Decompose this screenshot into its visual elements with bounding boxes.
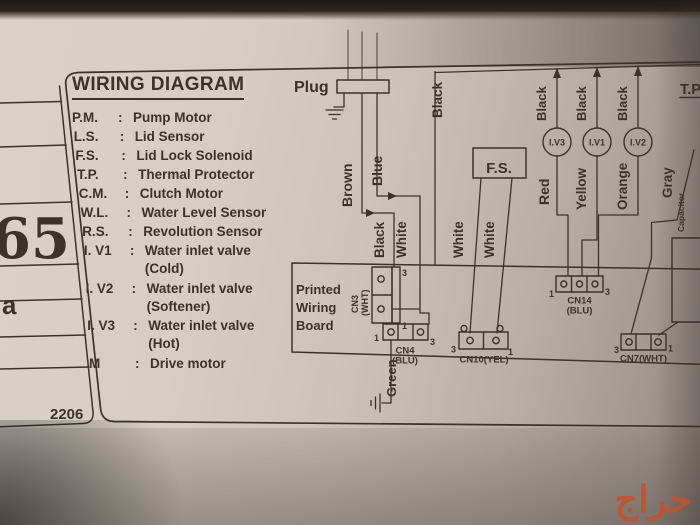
legend-item: I. V3:Water inlet valve	[87, 316, 266, 335]
legend-abbr: C.M.	[79, 184, 125, 203]
legend-sub: (Softener)	[86, 298, 267, 317]
legend-def: Drive motor	[141, 354, 226, 373]
legend-title: WIRING DIAGRAM	[72, 74, 244, 100]
legend-abbr: M	[89, 354, 135, 373]
legend-sub: (Hot)	[87, 335, 266, 354]
legend-item: C.M.:Clutch Motor	[79, 184, 267, 203]
photo-shadow-bottom-left	[0, 420, 280, 525]
legend-def: Pump Motor	[124, 108, 212, 127]
legend-abbr: T.P.	[77, 165, 123, 184]
legend-item: P.M.:Pump Motor	[72, 108, 266, 127]
legend-item: L.S.:Lid Sensor	[74, 127, 267, 146]
legend-item: W.L.:Water Level Sensor	[81, 203, 267, 222]
legend-def: Water inlet valve	[138, 279, 253, 298]
legend-def: Water inlet valve	[139, 316, 254, 335]
legend-abbr: P.M.	[72, 108, 118, 127]
legend-def: Clutch Motor	[131, 184, 223, 203]
legend-def: Water inlet valve	[136, 241, 251, 260]
legend-abbr: R.S.	[82, 222, 128, 241]
legend-abbr: L.S.	[74, 127, 120, 146]
legend-item: T.P.:Thermal Protector	[77, 165, 266, 184]
legend-list: P.M.:Pump Motor L.S.:Lid Sensor F.S.:Lid…	[72, 108, 266, 373]
legend-def: Thermal Protector	[129, 165, 254, 184]
haraj-watermark: حراج	[615, 478, 692, 521]
photo-of-wiring-label: { "side_panel": { "cell_big": "65", "cel…	[0, 0, 700, 525]
legend-abbr: W.L.	[81, 203, 127, 222]
legend-sub: (Cold)	[84, 260, 266, 279]
legend-item: I. V1:Water inlet valve	[84, 241, 266, 260]
legend-abbr: F.S.	[75, 146, 121, 165]
legend-abbr: I. V2	[86, 279, 132, 298]
legend-def: Revolution Sensor	[134, 222, 262, 241]
legend-abbr: I. V3	[87, 316, 133, 335]
legend-def: Water Level Sensor	[133, 203, 267, 222]
legend-def: Lid Sensor	[126, 127, 205, 146]
legend-abbr: I. V1	[84, 241, 130, 260]
photo-shadow-right	[655, 0, 700, 525]
legend-item: I. V2:Water inlet valve	[86, 279, 267, 298]
legend-item: F.S.:Lid Lock Solenoid	[75, 146, 266, 165]
legend-item: M:Drive motor	[89, 354, 266, 373]
legend-def: Lid Lock Solenoid	[127, 146, 252, 165]
legend-item: R.S.:Revolution Sensor	[82, 222, 266, 241]
